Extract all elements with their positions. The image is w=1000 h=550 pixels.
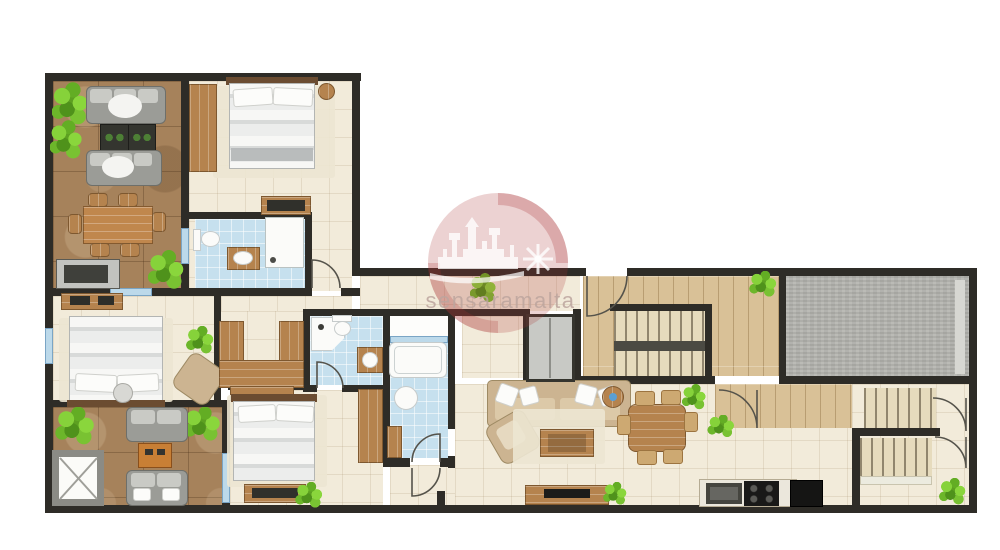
wardrobe [219,360,304,388]
bathtub-inner [394,346,442,374]
pillow [273,87,314,107]
wall [341,288,360,296]
wall [352,73,360,276]
round-stool [113,383,133,403]
pillow [133,488,151,501]
shower-drain [270,257,276,263]
wall [440,458,455,467]
bed-headboard [67,400,165,407]
chair [68,214,82,234]
wardrobe [358,389,383,463]
plant-icon [186,326,214,354]
window [45,328,53,364]
plant-icon [682,384,706,410]
light-shaft [390,316,448,338]
sofa-cushion [131,410,155,424]
chair [88,193,108,207]
wall [852,428,940,436]
bathroom-cabinet [387,426,402,458]
toilet [334,321,351,336]
pillow [238,404,277,423]
pillow [232,87,273,108]
plant-icon [183,407,221,441]
plant-icon [603,482,627,505]
dresser-item [70,296,90,305]
gray-area-edge-strip [955,280,965,374]
plant-icon [148,250,184,290]
sofa-cushion [157,410,181,424]
sofa-cushion [157,473,181,487]
stair-corridor-floor [715,384,852,428]
dresser-top [267,200,305,211]
common-stairs-upper-flight [864,388,936,428]
gray-covered-area [786,276,969,376]
sofa-throw [102,156,134,178]
plant-icon [50,120,82,160]
pillow [162,488,180,501]
wall [383,458,410,467]
dining-chair [637,450,657,465]
common-stairs-landing [860,476,932,485]
tv [544,489,590,498]
toilet [201,231,220,247]
washbasin [233,251,253,265]
washbasin [362,352,378,368]
internal-stairs-lower-flight [614,351,705,377]
wall [786,376,977,384]
plant-icon [707,415,735,437]
wall [45,505,977,513]
floor-plan: sensaramalta [0,0,1000,550]
wall [352,268,586,276]
wall [627,268,977,276]
shower-drain [318,324,324,330]
wall [852,428,860,513]
wall [779,268,786,384]
fridge [790,480,823,507]
coffee-table-inlay [548,434,586,452]
dining-chair [684,412,698,432]
lift-door-seam [549,318,551,378]
wall [437,491,445,507]
plant-icon [939,478,966,505]
watermark-text: sensaramalta [408,288,593,314]
terrace-coffee-table [128,124,156,151]
wall [448,309,455,429]
chair [118,193,138,207]
wall [303,309,310,392]
wall [305,212,312,296]
dining-chair [617,415,631,435]
terrace-dining-table [83,206,153,244]
pillow [75,373,118,393]
chair [152,212,166,232]
plant-icon [295,482,323,508]
wardrobe [189,84,217,172]
sofa-cushion [134,153,152,166]
cooktop [744,481,779,506]
sofa-throw [108,94,142,118]
chair [90,243,110,257]
table-item [157,449,165,455]
south-corridor-floor [390,465,455,505]
chair [120,243,140,257]
dining-chair [661,390,681,405]
toilet-tank [193,229,201,251]
nightstand [318,83,335,100]
washbasin [394,386,418,410]
sofa-cushion [138,89,158,103]
dining-chair [663,449,683,464]
wall [705,304,712,384]
dining-chair [635,391,655,406]
plant-icon [749,271,777,297]
plant-icon [55,407,95,445]
pillow [276,404,315,423]
skylight-void [52,450,104,506]
dresser-item [98,296,114,305]
dining-table [628,404,686,452]
storage-floor [462,316,523,378]
common-stairs-lower-flight [860,438,932,476]
castle-skyline-icon [438,217,518,269]
terrace-sideboard-top [64,265,108,283]
sofa-cushion [131,473,155,487]
sink-basin [710,487,738,500]
wall [969,268,977,513]
internal-stairs-landing [614,341,705,351]
side-table-bowl [609,393,617,401]
dresser-top [252,488,298,498]
table-item [145,449,153,455]
terrace-coffee-table [100,124,129,151]
internal-stairs-upper-flight [614,311,705,341]
terrace-coffee-table [138,443,172,468]
bed-runner [231,148,313,161]
wall [610,304,712,311]
